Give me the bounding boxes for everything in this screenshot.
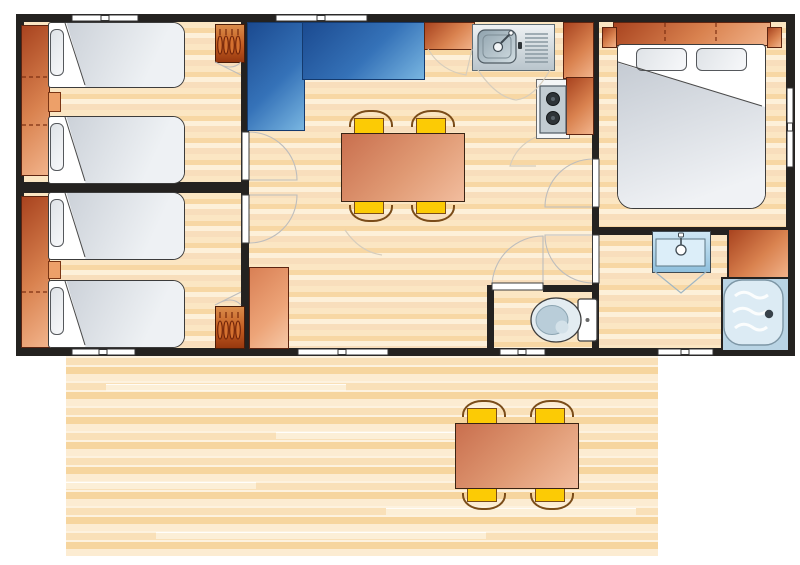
- toilet-icon: [531, 298, 597, 342]
- wardrobe-swing-lines: [215, 62, 241, 305]
- washbasin-icon: [654, 233, 707, 293]
- detail-overlay: [0, 0, 800, 565]
- shower-icon: [724, 280, 783, 345]
- floor-plan-page: { "scene": { "type": "floor-plan", "subj…: [0, 0, 800, 565]
- hanger-icons: [218, 29, 241, 339]
- kitchen-sink-icon: [478, 30, 548, 63]
- hob-icon: [540, 86, 566, 133]
- kitchen-swing-lines: [345, 49, 550, 255]
- door-symbols: [242, 132, 599, 290]
- bed-fold-lines: [65, 23, 762, 345]
- window-symbols: [72, 15, 793, 355]
